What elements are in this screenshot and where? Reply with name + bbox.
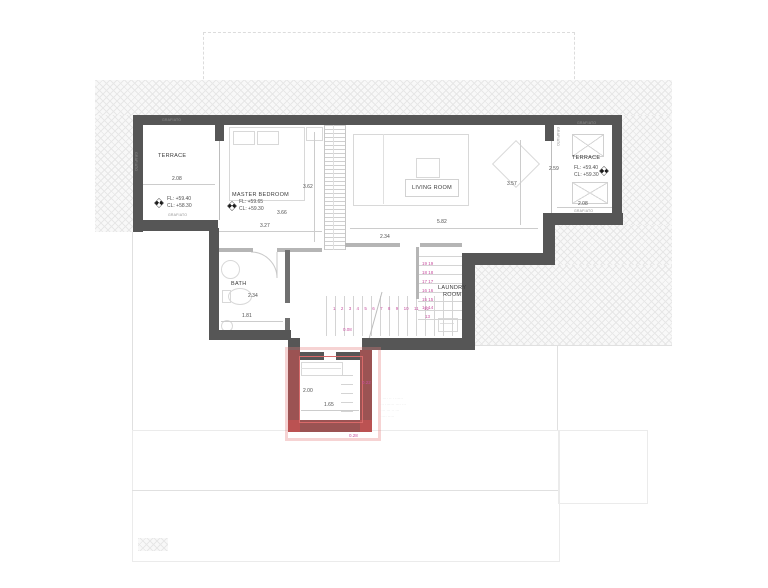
dim-terrace-left: 2.08 [172,176,182,182]
dim-entry-h: 1.65 [324,402,334,408]
entry-offset-bottom: 0.28 [349,433,358,438]
room-label-terrace-left: TERRACE [158,153,186,159]
stair-step-number: 4 [357,306,360,311]
laundry-partition [416,247,419,299]
finish-label-grafiato: GRAFIATO [168,213,187,217]
wall-left [133,115,143,232]
stair-step-number: 5 [364,306,367,311]
stair-offset-dim: 0.08 [343,327,352,332]
level-fl-bedroom: FL: +59.65 [239,199,263,205]
bedroom-bath-partition-a [219,248,253,252]
dim-bedroom-right: 3.62 [303,184,313,190]
stair-step-16: 16 16 [422,288,433,293]
wall-terrace-left-bottom [133,220,218,231]
wall-terrace-right-bottom [543,213,623,225]
bedroom-bath-partition-b [277,248,322,252]
dim-entry-v: 2.00 [303,388,313,394]
dim-terrace-right-bottom: 2.08 [578,201,588,207]
dim-bath-a: 2.34 [248,293,258,299]
stair-step-number: 1 [333,306,336,311]
terrace-right-window [551,141,552,213]
room-label-bath: BATH [231,281,246,287]
room-label-living: LIVING ROOM [412,185,452,191]
stair-step-13: 13 [425,314,430,319]
room-label-laundry-2: ROOM [443,292,461,298]
level-fl-terrace-left: FL: +59.40 [167,196,191,202]
bath-hall-partition-a [285,250,290,303]
pier-terrace-left [215,115,224,141]
entry-offset-right: 0.22 [362,380,371,385]
living-corridor-partition-a [345,243,400,247]
stair-step-number: 2 [341,306,344,311]
stair-step-18: 18 18 [422,270,433,275]
stair-step-number: 9 [396,306,399,311]
pier-terrace-right [545,115,554,141]
wall-step-horizontal [462,253,555,265]
dim-living-left: 2.34 [380,234,390,240]
stair-step-number: 7 [380,306,383,311]
stair-step-number: 12 [424,306,429,311]
wall-right [612,115,622,225]
living-corridor-partition-b [420,243,462,247]
stair-step-17: 17 17 [422,279,433,284]
dim-bath-b: 1.81 [242,313,252,319]
finish-label-grafiato: GRAFIATO [134,152,138,171]
room-label-laundry-1: LAUNDRY [438,285,466,291]
room-label-terrace-right: TERRACE [572,155,600,161]
level-cl-terrace-right: CL: +59.30 [574,172,599,178]
stair-step-number: 8 [388,306,391,311]
stair-step-15: 15 15 [422,297,433,302]
finish-label-grafiato: GRAFIATO [577,121,596,125]
level-cl-bedroom: CL: +59.30 [239,206,264,212]
dim-terrace-right-left: 2.59 [549,166,559,172]
terrace-left-window [219,141,220,220]
floor-plan-canvas: TERRACE 2.08 FL: +59.40 CL: +58.30 GRAFI… [0,0,768,588]
dim-living-right: 3.57 [507,181,517,187]
dim-bedroom-low: 3.27 [260,223,270,229]
stair-step-19: 19 19 [422,261,433,266]
finish-label-grafiato: GRAFIATO [556,127,560,146]
finish-label-grafiato: GRAFIATO [162,118,181,122]
room-label-master-bedroom: MASTER BEDROOM [232,192,289,198]
level-fl-terrace-right: FL: +59.40 [574,165,598,171]
room-labelbox-living: LIVING ROOM [405,179,459,197]
stair-run-numbers: 1 2 3 4 5 6 7 8 9 10 11 12 [333,306,429,311]
wall-laundry-right [462,253,475,350]
note-line: ····· ····· [380,414,406,420]
finish-label-grafiato: GRAFIATO [574,209,593,213]
note-text: · ···· ·· · ······ ··· ······· ···· ··· … [380,396,406,420]
wall-bath-left [209,228,219,340]
level-cl-terrace-left: CL: +58.30 [167,203,192,209]
stair-step-number: 3 [349,306,352,311]
dim-living-bottom: 5.82 [437,219,447,225]
stair-step-number: 10 [404,306,409,311]
door-arc-overlay [0,0,768,588]
wall-bath-bottom [209,330,291,340]
stair-step-number: 11 [414,306,419,311]
dim-bedroom-mid: 3.66 [277,210,287,216]
stair-step-number: 6 [372,306,375,311]
